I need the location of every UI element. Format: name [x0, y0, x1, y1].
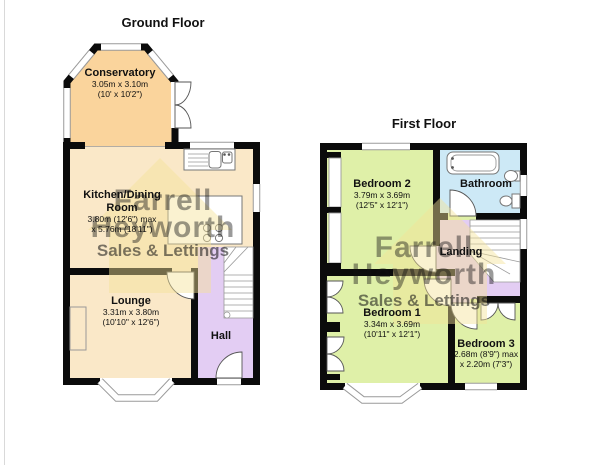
- bay-opening: [100, 378, 172, 386]
- svg-text:2.68m (8'9") max: 2.68m (8'9") max: [454, 349, 519, 359]
- svg-text:Conservatory: Conservatory: [85, 67, 157, 79]
- svg-text:3.80m (12'6") max: 3.80m (12'6") max: [88, 214, 158, 224]
- svg-text:3.34m x 3.69m: 3.34m x 3.69m: [364, 319, 420, 329]
- bathroom-label: Bathroom: [460, 178, 512, 190]
- watermark-tagline: Sales & Lettings: [97, 241, 229, 260]
- bedroom1-label: Bedroom 1 3.34m x 3.69m (10'11" x 12'1"): [363, 307, 420, 339]
- bedroom3-label: Bedroom 3 2.68m (8'9") max x 2.20m (7'3"…: [454, 338, 519, 369]
- svg-text:Kitchen/Dining: Kitchen/Dining: [83, 189, 161, 201]
- svg-text:(10'11" x 12'1"): (10'11" x 12'1"): [364, 329, 421, 339]
- svg-text:Room: Room: [106, 202, 137, 214]
- svg-text:Lounge: Lounge: [111, 295, 151, 307]
- bedroom2-wardrobes-icon: [327, 152, 341, 269]
- svg-text:Bedroom 1: Bedroom 1: [363, 307, 420, 319]
- french-door-leaf-icon: [175, 105, 191, 128]
- floorplan-drawing: Farrell Heyworth Sales & Lettings Farrel…: [0, 0, 600, 465]
- svg-text:3.31m x 3.80m: 3.31m x 3.80m: [103, 307, 159, 317]
- svg-text:Bedroom 2: Bedroom 2: [353, 178, 410, 190]
- first-floor-title: First Floor: [392, 116, 456, 131]
- watermark-name2: Heyworth: [352, 258, 497, 291]
- kitchen-sink-icon: [184, 149, 235, 170]
- bay-opening-bed1: [345, 383, 420, 391]
- bathtub-icon: [447, 152, 499, 174]
- svg-text:3.79m x 3.69m: 3.79m x 3.69m: [354, 190, 410, 200]
- svg-text:x 5.76m (18'11"): x 5.76m (18'11"): [91, 224, 152, 234]
- svg-text:x 2.20m (7'3"): x 2.20m (7'3"): [460, 359, 513, 369]
- svg-text:3.05m x 3.10m: 3.05m x 3.10m: [92, 79, 148, 89]
- svg-text:(10'10" x 12'6"): (10'10" x 12'6"): [102, 317, 159, 327]
- svg-text:(12'5" x 12'1"): (12'5" x 12'1"): [356, 200, 408, 210]
- landing-label: Landing: [440, 246, 483, 258]
- floorplan-page: Farrell Heyworth Sales & Lettings Farrel…: [0, 0, 600, 465]
- conservatory-opening: [85, 142, 165, 147]
- svg-text:(10' x 10'2"): (10' x 10'2"): [98, 89, 143, 99]
- hall-label: Hall: [211, 330, 231, 342]
- ground-floor-title: Ground Floor: [121, 15, 204, 30]
- bedroom2-label: Bedroom 2 3.79m x 3.69m (12'5" x 12'1"): [353, 178, 410, 210]
- french-door-leaf-icon: [175, 82, 191, 105]
- wall-bathroom-bottom-right: [476, 213, 527, 220]
